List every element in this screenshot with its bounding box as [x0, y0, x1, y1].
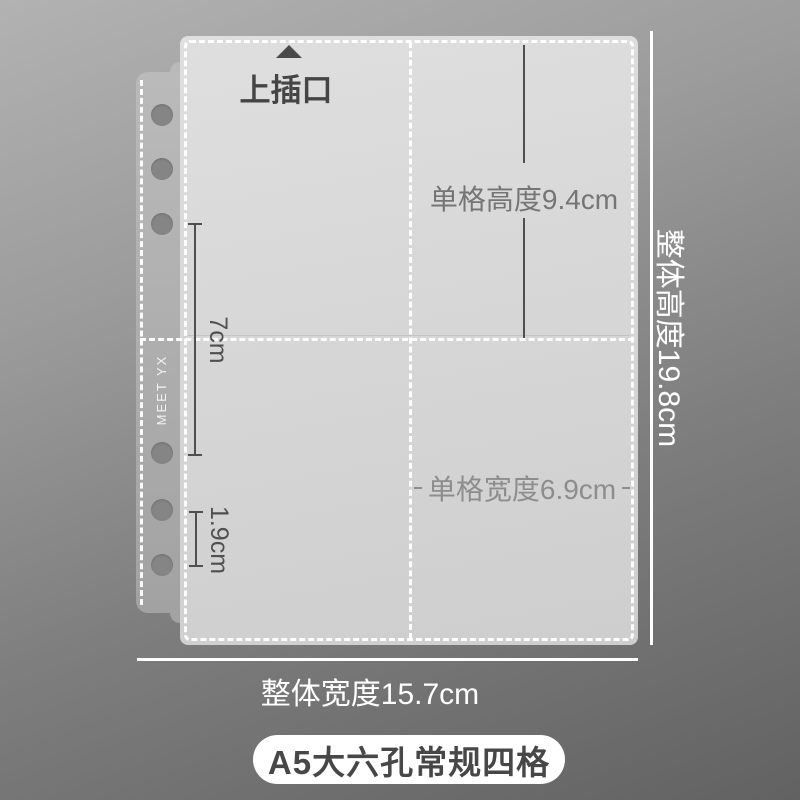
overall-width-line [137, 658, 638, 661]
cell-width-label: 单格宽度6.9cm [428, 468, 616, 508]
spine-bottom-fillet [170, 613, 180, 623]
binder-hole [151, 442, 173, 464]
spine-stitch-line [140, 80, 143, 605]
top-insert-label: 上插口 [211, 65, 361, 110]
product-spec-badge: A5大六孔常规四格 [253, 735, 565, 784]
cell-width-line-right [622, 487, 630, 489]
measure-1-9cm-line [195, 511, 197, 567]
binder-hole [151, 499, 173, 521]
cell-height-line-upper [523, 45, 525, 163]
binder-hole [151, 213, 173, 235]
product-spec-badge-label: A5大六孔常规四格 [268, 736, 550, 784]
product-image: MEET YX 上插口 单格高度9.4cm 7cm 1.9cm 单格宽度6.9c… [0, 0, 800, 800]
overall-width-label: 整体宽度15.7cm [260, 669, 480, 713]
binder-hole [151, 104, 173, 126]
binder-hole [151, 554, 173, 576]
cell-height-label: 单格高度9.4cm [394, 178, 654, 218]
binder-spine [136, 72, 182, 613]
measure-7cm-label: 7cm [206, 300, 232, 380]
cell-width-annotation: 单格宽度6.9cm [414, 473, 630, 503]
cell-width-line-left [414, 487, 422, 489]
brand-text: MEET YX [154, 348, 170, 432]
binder-hole [151, 158, 173, 180]
up-arrow-icon [276, 45, 302, 58]
cell-height-line-lower [523, 218, 525, 338]
overall-height-label: 整体高度19.8cm [660, 188, 694, 488]
spine-top-fillet [170, 62, 180, 72]
measure-7cm-line [194, 223, 196, 456]
measure-1-9cm-label: 1.9cm [207, 493, 233, 587]
